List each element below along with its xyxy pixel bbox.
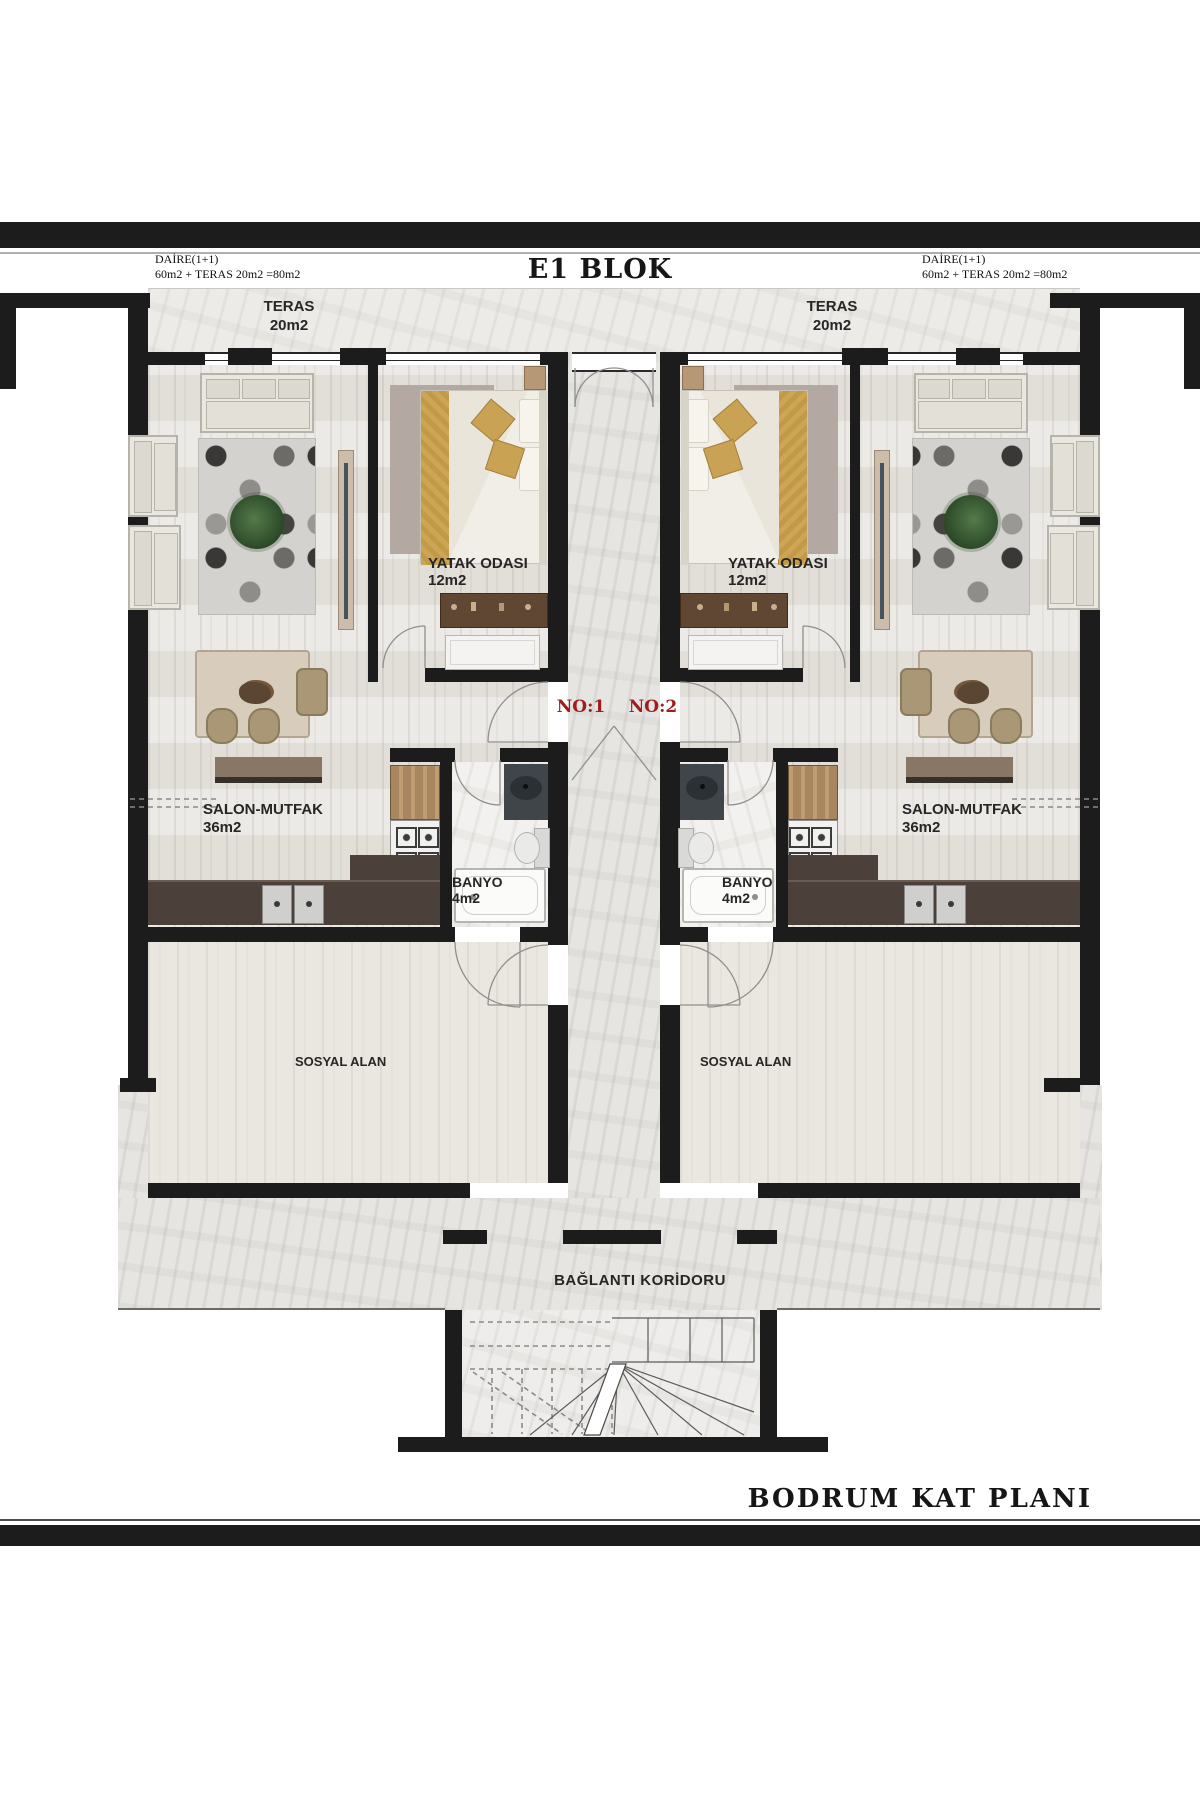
bedroom-left-name: YATAK ODASI xyxy=(428,555,528,572)
salon-right-area: 36m2 xyxy=(902,819,1022,837)
label-social-left: SOSYAL ALAN xyxy=(295,1054,386,1069)
floor-plan-title: BODRUM KAT PLANI xyxy=(748,1484,1092,1514)
bedroom-left-area: 12m2 xyxy=(428,572,528,589)
banyo-left-area: 4m2 xyxy=(452,890,503,906)
bedroom-right-name: YATAK ODASI xyxy=(728,555,828,572)
label-teras-right: TERAS 20m2 xyxy=(782,297,882,335)
salon-right-name: SALON-MUTFAK xyxy=(902,801,1022,819)
label-salon-left: SALON-MUTFAK 36m2 xyxy=(203,801,323,837)
label-social-right: SOSYAL ALAN xyxy=(700,1054,791,1069)
salon-left-name: SALON-MUTFAK xyxy=(203,801,323,819)
bottom-border-bar xyxy=(0,1525,1200,1546)
teras-right-name: TERAS xyxy=(782,297,882,316)
label-connection-corridor: BAĞLANTI KORİDORU xyxy=(490,1272,790,1289)
teras-left-area: 20m2 xyxy=(239,316,339,335)
label-banyo-right: BANYO 4m2 xyxy=(722,874,773,906)
banyo-right-name: BANYO xyxy=(722,874,773,890)
label-bedroom-left: YATAK ODASI 12m2 xyxy=(428,555,528,589)
banyo-left-name: BANYO xyxy=(452,874,503,890)
bedroom-right-area: 12m2 xyxy=(728,572,828,589)
teras-left-name: TERAS xyxy=(239,297,339,316)
banyo-right-area: 4m2 xyxy=(722,890,773,906)
label-bedroom-right: YATAK ODASI 12m2 xyxy=(728,555,828,589)
label-teras-left: TERAS 20m2 xyxy=(239,297,339,335)
salon-left-area: 36m2 xyxy=(203,819,323,837)
unit-number-1: NO:1 xyxy=(549,697,613,717)
unit-number-2: NO:2 xyxy=(621,697,685,717)
label-banyo-left: BANYO 4m2 xyxy=(452,874,503,906)
bottom-border-topline xyxy=(0,1519,1200,1521)
teras-right-area: 20m2 xyxy=(782,316,882,335)
label-salon-right: SALON-MUTFAK 36m2 xyxy=(902,801,1022,837)
floor-plan-page: DAİRE(1+1) 60m2 + TERAS 20m2 =80m2 E1 BL… xyxy=(0,0,1200,1800)
